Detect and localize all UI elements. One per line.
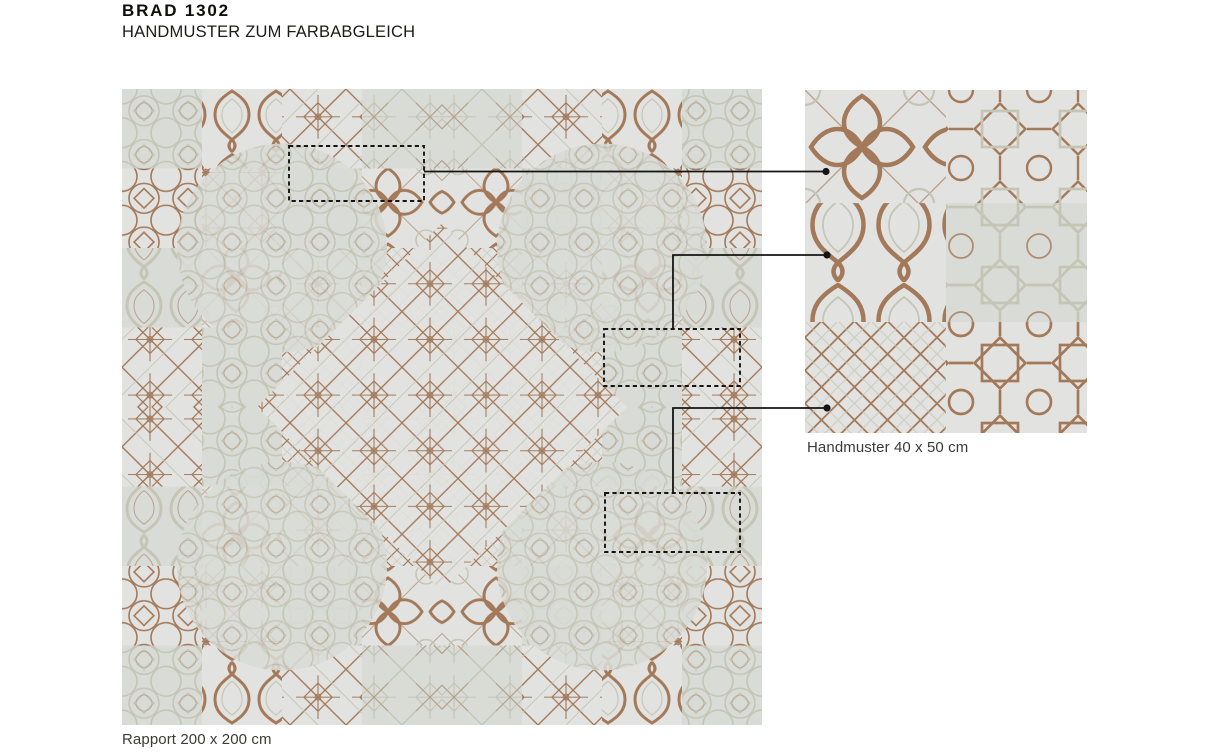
- page-title: BRAD 1302: [122, 1, 230, 21]
- rapport-figure: [122, 89, 762, 725]
- page-subtitle: HANDMUSTER ZUM FARBABGLEICH: [122, 23, 415, 42]
- handmuster-caption: Handmuster 40 x 50 cm: [807, 439, 968, 456]
- product-sheet: { "page": { "title": "BRAD 1302", "subti…: [0, 0, 1210, 754]
- handmuster-image: [805, 90, 1087, 433]
- rapport-caption: Rapport 200 x 200 cm: [122, 731, 272, 748]
- handmuster-figure: [805, 90, 1087, 433]
- rapport-image: [122, 89, 762, 725]
